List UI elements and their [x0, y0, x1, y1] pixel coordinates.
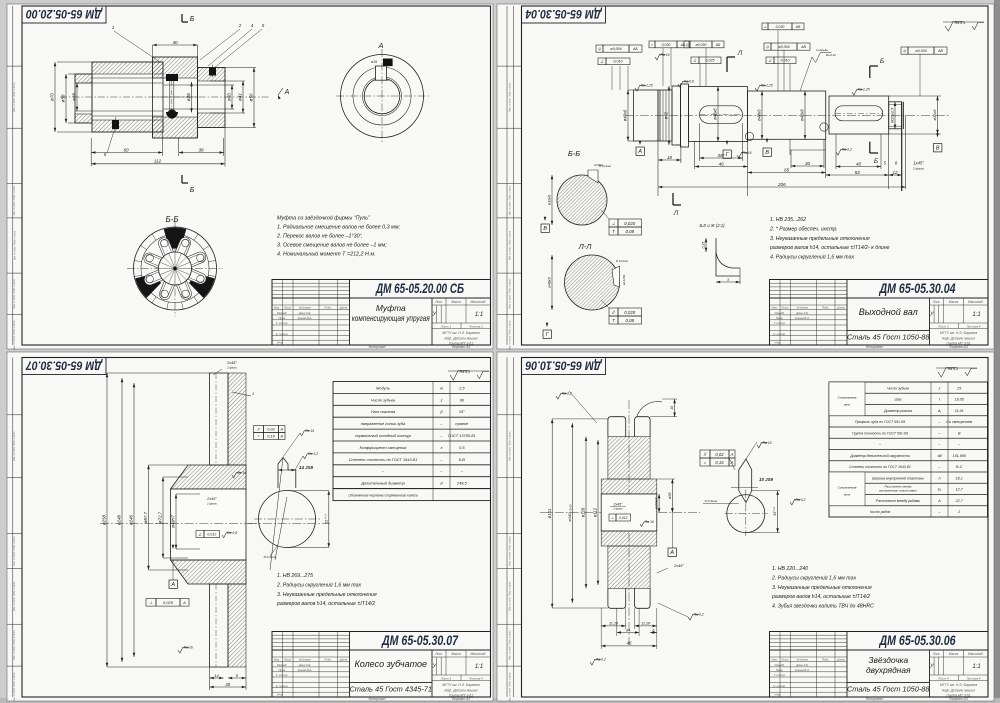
- svg-text:ø248: ø248: [117, 514, 122, 525]
- svg-text:40: 40: [172, 40, 178, 45]
- svg-text:3: 3: [727, 278, 729, 282]
- svg-text:Ra 1,25: Ra 1,25: [761, 84, 773, 88]
- svg-text:Утв.: Утв.: [774, 693, 781, 697]
- svg-text:Масштаб: Масштаб: [968, 652, 983, 656]
- svg-text:Ra 16: Ra 16: [660, 53, 669, 57]
- svg-text:Утв.: Утв.: [277, 341, 284, 345]
- svg-text:0,025: 0,025: [163, 600, 174, 605]
- svg-text:18: 18: [667, 155, 673, 160]
- svg-text:d∂: d∂: [938, 454, 942, 458]
- svg-text:10ЈS9: 10ЈS9: [594, 163, 603, 167]
- svg-text:2,5: 2,5: [458, 385, 465, 390]
- svg-text:Ra 3,2: Ra 3,2: [795, 498, 805, 502]
- svg-text:Лист 2: Лист 2: [937, 325, 949, 329]
- svg-text:Профиль зуба по ГОСТ 591-69: Профиль зуба по ГОСТ 591-69: [855, 420, 905, 424]
- svg-text:Инв. № подл. Подп. и дата: Инв. № подл. Подп. и дата: [508, 431, 511, 461]
- svg-text:Пров.: Пров.: [278, 668, 286, 672]
- svg-text:ø0,004: ø0,004: [610, 47, 621, 51]
- svg-text:Лист: Лист: [780, 658, 789, 662]
- svg-text:Формат А3: Формат А3: [452, 345, 471, 349]
- svg-text:Л: Л: [737, 50, 743, 57]
- svg-text:ø38: ø38: [72, 93, 77, 101]
- svg-text:ДМ 65-05.30.04: ДМ 65-05.30.04: [525, 7, 602, 21]
- svg-text:Инв. № подл. Подп. и дата: Инв. № подл. Подп. и дата: [13, 630, 16, 660]
- svg-text:0,02: 0,02: [715, 452, 724, 457]
- svg-text:Л-Л: Л-Л: [578, 242, 593, 251]
- svg-text:ø0,004: ø0,004: [915, 49, 926, 53]
- svg-text:МГТУ им. Н.Э. Баумана: МГТУ им. Н.Э. Баумана: [442, 331, 479, 335]
- svg-text:ø128: ø128: [581, 507, 586, 517]
- svg-text:ø32Н7: ø32Н7: [655, 497, 659, 509]
- svg-text:Дата: Дата: [339, 658, 348, 662]
- svg-text:ø246: ø246: [129, 514, 134, 525]
- svg-text:А: А: [170, 582, 175, 588]
- svg-text:Число зубьев: Число зубьев: [371, 397, 395, 402]
- svg-text:Каф. Детали машин: Каф. Детали машин: [445, 689, 478, 693]
- svg-text:38: 38: [198, 147, 204, 152]
- svg-text:4. Зубья звездочки калить ТВЧ: 4. Зубья звездочки калить ТВЧ до 48HRC: [772, 604, 874, 610]
- svg-text:ДМ 65-05.30.04: ДМ 65-05.30.04: [879, 281, 956, 296]
- svg-text:40: 40: [856, 161, 862, 166]
- svg-text:Ra 3,2: Ra 3,2: [308, 452, 318, 456]
- svg-text:1:1: 1:1: [475, 312, 483, 318]
- svg-text:Степень точности по ГОСТ 1643-: Степень точности по ГОСТ 1643-81: [349, 457, 418, 462]
- svg-text:0,02: 0,02: [267, 428, 275, 432]
- svg-text:Ширина внутренней пластины: Ширина внутренней пластины: [872, 476, 924, 480]
- svg-text:У: У: [929, 312, 934, 318]
- svg-text:0,08: 0,08: [625, 229, 634, 234]
- svg-text:В: В: [543, 226, 547, 232]
- svg-text:Изм.: Изм.: [274, 306, 280, 310]
- svg-text:ДМ 65-05.30.07: ДМ 65-05.30.07: [381, 633, 459, 648]
- svg-text:0,010: 0,010: [781, 59, 790, 63]
- svg-text:Изм.: Изм.: [274, 658, 280, 662]
- svg-text:Сталь 45 Гост 1050-88: Сталь 45 Гост 1050-88: [847, 685, 930, 694]
- svg-text:Б: Б: [874, 158, 878, 165]
- svg-text:30: 30: [225, 682, 230, 687]
- svg-text:0,012: 0,012: [619, 516, 628, 520]
- svg-text:1. НВ 269...275: 1. НВ 269...275: [277, 573, 313, 579]
- svg-text:ø48Н7: ø48Н7: [171, 515, 176, 528]
- svg-text:Листов 1: Листов 1: [468, 325, 483, 329]
- svg-text:Инв. № подл. Подп. и дата: Инв. № подл. Подп. и дата: [508, 230, 511, 260]
- svg-text:z: z: [440, 397, 443, 402]
- svg-text:18,1: 18,1: [956, 476, 963, 480]
- svg-text:В-С: В-С: [956, 465, 963, 469]
- svg-text:Пров.: Пров.: [278, 316, 286, 320]
- svg-text:Ra 16: Ra 16: [237, 471, 246, 475]
- svg-text:53: 53: [855, 170, 861, 175]
- svg-text:Муфта: Муфта: [376, 303, 406, 313]
- svg-text:Ra 6,3: Ra 6,3: [460, 370, 471, 374]
- svg-text:Масса: Масса: [451, 652, 461, 656]
- svg-text:z: z: [938, 386, 941, 390]
- svg-text:Данс К.Е.: Данс К.Е.: [795, 311, 809, 315]
- svg-text:Подп.: Подп.: [822, 658, 830, 662]
- svg-text:Б: Б: [880, 58, 884, 65]
- svg-text:ø50: ø50: [249, 93, 254, 101]
- svg-text:Число рядов: Число рядов: [870, 510, 891, 514]
- svg-text:Лит.: Лит.: [434, 300, 443, 304]
- svg-text:Т. контр.: Т. контр.: [773, 673, 785, 677]
- svg-text:1:1: 1:1: [972, 664, 980, 670]
- svg-text:А: А: [637, 149, 642, 155]
- svg-text:Инв. № подл. Подп. и дата: Инв. № подл. Подп. и дата: [508, 672, 511, 702]
- svg-text:0,5: 0,5: [459, 445, 465, 450]
- svg-text:Ra 3,2: Ra 3,2: [596, 658, 606, 662]
- svg-text:Инв. № подл. Подп. и дата: Инв. № подл. Подп. и дата: [13, 82, 16, 112]
- svg-text:ø112: ø112: [593, 507, 598, 517]
- svg-text:Копировал: Копировал: [866, 697, 883, 701]
- svg-text:Обозначение чертежа сопряженно: Обозначение чертежа сопряженного колеса: [348, 494, 417, 498]
- svg-text:Ra 6,3: Ra 6,3: [955, 21, 966, 25]
- svg-text:№ докум.: № докум.: [796, 658, 809, 662]
- svg-text:нормальный исходный контур: нормальный исходный контур: [355, 433, 411, 438]
- svg-text:0,030: 0,030: [662, 43, 671, 47]
- svg-text:52⁺°·²: 52⁺°·²: [324, 513, 328, 524]
- svg-text:Муфта со звёздочкой фирмы “Пу: Муфта со звёздочкой фирмы “Пуль”: [277, 215, 370, 222]
- svg-text:правое: правое: [455, 421, 469, 426]
- svg-text:Модуль: Модуль: [376, 385, 390, 390]
- svg-text:Листов 4: Листов 4: [966, 677, 981, 681]
- svg-text:Лист: Лист: [780, 306, 789, 310]
- svg-text:А: А: [279, 428, 283, 432]
- svg-text:1:1: 1:1: [475, 664, 483, 670]
- svg-text:ГОСТ 13755-81: ГОСТ 13755-81: [448, 433, 476, 438]
- svg-text:двухрядная: двухрядная: [866, 665, 911, 675]
- svg-text:Н. контр.: Н. контр.: [276, 684, 289, 688]
- svg-text:Инв. № подл. Подп. и дата: Инв. № подл. Подп. и дата: [13, 536, 16, 566]
- svg-text:Масштаб: Масштаб: [968, 300, 983, 304]
- svg-text:206: 206: [777, 182, 786, 187]
- svg-text:0,020: 0,020: [624, 310, 636, 315]
- svg-text:Инв. № подл. Подп. и дата: Инв. № подл. Подп. и дата: [13, 672, 16, 702]
- svg-text:Клюев В.А.: Клюев В.А.: [795, 668, 810, 672]
- svg-text:А: А: [284, 89, 290, 96]
- svg-text:№ докум.: № докум.: [796, 306, 809, 310]
- svg-text:Масса: Масса: [451, 300, 461, 304]
- svg-text:ø0,004: ø0,004: [778, 45, 789, 49]
- svg-text:компенсирующая упругая: компенсирующая упругая: [352, 313, 430, 323]
- svg-text:1:1: 1:1: [972, 312, 980, 318]
- svg-text:46: 46: [627, 641, 632, 646]
- svg-text:Инв. № подл. Подп. и дата: Инв. № подл. Подп. и дата: [508, 630, 511, 660]
- svg-text:АВ: АВ: [937, 49, 943, 53]
- svg-text:Коэффициент смещения: Коэффициент смещения: [360, 445, 407, 450]
- svg-text:Лист: Лист: [283, 306, 292, 310]
- svg-text:Н. контр.: Н. контр.: [773, 684, 786, 688]
- svg-text:46: 46: [719, 161, 725, 166]
- svg-text:В: В: [765, 150, 769, 156]
- svg-text:Б: Б: [190, 16, 195, 23]
- svg-text:А: А: [730, 452, 734, 457]
- svg-text:Инв. № подл. Подп. и дата: Инв. № подл. Подп. и дата: [13, 320, 16, 350]
- svg-text:4. Радиусы скруглений 1,6 мм: 4. Радиусы скруглений 1,6 мм max: [770, 254, 854, 261]
- svg-text:ДМ 65-05.20.00: ДМ 65-05.20.00: [26, 7, 103, 21]
- svg-text:2 фаски: 2 фаски: [612, 508, 623, 511]
- svg-text:Изм.: Изм.: [772, 306, 778, 310]
- svg-text:11,91: 11,91: [955, 409, 964, 413]
- svg-text:Клюев В.А.: Клюев В.А.: [795, 316, 810, 320]
- svg-text:А: А: [669, 550, 674, 556]
- svg-text:Степень точности по ГОСТ 1643-: Степень точности по ГОСТ 1643-81: [849, 465, 911, 469]
- svg-text:У: У: [929, 664, 934, 670]
- svg-text:ø48к6: ø48к6: [548, 276, 552, 287]
- svg-text:Ra 0,8: Ra 0,8: [684, 80, 694, 84]
- svg-text:19,05: 19,05: [955, 398, 965, 402]
- svg-text:Инв. № подл. Подп. и дата: Инв. № подл. Подп. и дата: [508, 278, 511, 308]
- svg-text:Формат А3: Формат А3: [452, 697, 471, 701]
- svg-text:Л: Л: [673, 210, 679, 217]
- svg-text:3. Осевое смещение валов не б: 3. Осевое смещение валов не более –1 мм;: [277, 243, 387, 249]
- svg-text:22,7: 22,7: [955, 499, 964, 503]
- svg-text:У: У: [432, 312, 437, 318]
- svg-text:0,025: 0,025: [706, 59, 715, 63]
- svg-text:Группа точности по ГОСТ 591-69: Группа точности по ГОСТ 591-69: [852, 431, 908, 435]
- svg-text:2: 2: [238, 23, 242, 28]
- svg-text:ДМ 65-05.30.07: ДМ 65-05.30.07: [25, 359, 103, 373]
- svg-text:ø87,7: ø87,7: [143, 511, 148, 523]
- svg-text:Листов 4: Листов 4: [468, 677, 483, 681]
- svg-text:0,16: 0,16: [715, 460, 724, 465]
- svg-text:Инв. № подл. Подп. и дата: Инв. № подл. Подп. и дата: [508, 82, 511, 112]
- svg-text:Сталь 45 Гост 4345-71: Сталь 45 Гост 4345-71: [349, 685, 432, 694]
- svg-text:ø52: ø52: [664, 111, 669, 119]
- svg-text:внутренними пластинами: внутренними пластинами: [879, 489, 917, 493]
- svg-text:Шаг: Шаг: [895, 398, 902, 402]
- svg-text:Б-Б: Б-Б: [568, 149, 580, 158]
- svg-text:h: h: [938, 476, 940, 480]
- svg-text:=: =: [651, 43, 653, 47]
- svg-text:Диаметр делительной окружности: Диаметр делительной окружности: [849, 454, 910, 458]
- svg-text:14 ЈS9: 14 ЈS9: [299, 465, 313, 470]
- svg-text:1: 1: [252, 391, 254, 396]
- svg-text:Клюев В.А.: Клюев В.А.: [298, 668, 313, 672]
- svg-text:Т. контр.: Т. контр.: [276, 321, 288, 325]
- svg-text:№ докум.: № докум.: [299, 658, 312, 662]
- svg-text:Подп.: Подп.: [822, 306, 830, 310]
- svg-text:12: 12: [892, 170, 898, 175]
- svg-text:0,010: 0,010: [614, 60, 623, 64]
- svg-text:Со смещением: Со смещением: [946, 420, 972, 424]
- svg-text:ø28: ø28: [186, 93, 191, 101]
- svg-text:ø140₋₀,₄₃: ø140₋₀,₄₃: [567, 504, 572, 522]
- svg-text:2х45°: 2х45°: [612, 503, 623, 507]
- svg-text:6: 6: [652, 628, 654, 632]
- svg-text:Ra 3,2: Ra 3,2: [842, 148, 852, 152]
- svg-text:⊥: ⊥: [149, 600, 153, 605]
- svg-text:11,28: 11,28: [641, 622, 651, 626]
- svg-text:Лист 4: Лист 4: [937, 677, 949, 681]
- svg-text:ø48к6: ø48к6: [757, 109, 762, 121]
- svg-text:3. Неуказанные предельные отк: 3. Неуказанные предельные отклонения: [772, 585, 872, 591]
- svg-text:2. Радиусы скруглений 1,6 мм: 2. Радиусы скруглений 1,6 мм max: [771, 574, 856, 581]
- svg-text:Подп.: Подп.: [324, 658, 332, 662]
- svg-text:2 фаски: 2 фаски: [206, 502, 217, 506]
- svg-text:АВ: АВ: [800, 45, 806, 49]
- svg-text:АБ: АБ: [715, 43, 721, 47]
- svg-text:Лист 3: Лист 3: [440, 677, 452, 681]
- svg-text:Разраб.: Разраб.: [277, 663, 287, 667]
- svg-text:ø161: ø161: [547, 509, 552, 519]
- svg-text:2. * Размер обеспеч. инстр.: 2. * Размер обеспеч. инстр.: [769, 226, 838, 232]
- svg-text:Утв.: Утв.: [277, 693, 284, 697]
- svg-text:⊥: ⊥: [763, 25, 766, 29]
- svg-text:10: 10: [670, 406, 674, 410]
- svg-text:Ra 16: Ra 16: [645, 520, 654, 524]
- svg-text:2. Перекос валов не более –1°: 2. Перекос валов не более –1°30';: [276, 234, 363, 240]
- svg-text:Б-Б: Б-Б: [165, 215, 178, 224]
- svg-text:А: А: [182, 600, 186, 605]
- svg-text:гл.резьбы: гл.резьбы: [816, 48, 828, 52]
- svg-text:МГТУ им. Н.Э. Баумана: МГТУ им. Н.Э. Баумана: [442, 683, 479, 687]
- svg-text:ø32к6: ø32к6: [548, 194, 552, 205]
- svg-text:Данс К.Е.: Данс К.Е.: [795, 663, 809, 667]
- svg-text:Утв.: Утв.: [774, 341, 781, 345]
- svg-text:Инв. № подл. Подп. и дата: Инв. № подл. Подп. и дата: [13, 230, 16, 260]
- svg-text:ø30: ø30: [227, 93, 232, 101]
- svg-text:151,995: 151,995: [953, 454, 967, 458]
- svg-text:ø258: ø258: [102, 514, 107, 525]
- svg-text:А: А: [279, 435, 283, 439]
- svg-text:Разраб.: Разраб.: [277, 311, 287, 315]
- svg-text:Инв. № подл. Подп. и дата: Инв. № подл. Подп. и дата: [508, 536, 511, 566]
- svg-text:–: –: [878, 443, 881, 447]
- svg-text:3. Неуказанные предельные отк: 3. Неуказанные предельные отклонения: [277, 592, 377, 598]
- svg-text:15°: 15°: [459, 409, 465, 414]
- svg-text:2х45°: 2х45°: [673, 564, 684, 568]
- svg-text:R 0,1max: R 0,1max: [616, 259, 629, 263]
- svg-text:Масштаб: Масштаб: [471, 652, 486, 656]
- svg-text:Лит.: Лит.: [932, 652, 941, 656]
- svg-text:Данс К.Е.: Данс К.Е.: [298, 311, 312, 315]
- svg-text:35°⁺²: 35°⁺²: [773, 507, 777, 516]
- svg-text:Ra 3,2: Ra 3,2: [694, 613, 704, 617]
- svg-text:Масса: Масса: [949, 652, 959, 656]
- svg-text:ø19: ø19: [371, 60, 377, 64]
- svg-text:⊥: ⊥: [612, 221, 616, 226]
- svg-text:№ докум.: № докум.: [299, 306, 312, 310]
- svg-text:Дата: Дата: [836, 306, 845, 310]
- svg-text:Инв. № подл. Подп. и дата: Инв. № подл. Подп. и дата: [508, 320, 511, 350]
- svg-text:А: А: [937, 499, 941, 503]
- svg-text:2 фаски: 2 фаски: [226, 366, 237, 370]
- svg-text:М20х1,5: М20х1,5: [890, 107, 895, 123]
- svg-text:1. НВ 235...262: 1. НВ 235...262: [770, 217, 806, 223]
- svg-text:34: 34: [626, 627, 631, 632]
- svg-text:Лист: Лист: [283, 658, 292, 662]
- svg-text:Сопрягаемая: Сопрягаемая: [838, 396, 857, 400]
- svg-text:Б: Б: [190, 187, 195, 194]
- svg-text:0,020: 0,020: [624, 221, 636, 226]
- svg-text:3. Неуказанные предельные отк: 3. Неуказанные предельные отклонения: [770, 236, 870, 242]
- svg-text:ø40к6: ø40к6: [623, 109, 628, 121]
- svg-text:Делительный диаметр: Делительный диаметр: [360, 481, 405, 486]
- svg-text:ДМ 65-05.10.06: ДМ 65-05.10.06: [525, 359, 602, 373]
- svg-text:Число зубьев: Число зубьев: [887, 386, 909, 390]
- svg-text:ø0,030: ø0,030: [696, 43, 707, 47]
- svg-text:Клюев В.А.: Клюев В.А.: [298, 316, 313, 320]
- svg-text:ø40к8: ø40к8: [800, 109, 805, 121]
- svg-text:Инв. № подл. Подп. и дата: Инв. № подл. Подп. и дата: [13, 185, 16, 215]
- svg-text:Угол наклона: Угол наклона: [371, 409, 396, 414]
- svg-text:Ra 1,25: Ra 1,25: [641, 84, 653, 88]
- svg-text:Звёздочка: Звёздочка: [868, 655, 908, 665]
- svg-text:Ra 16: Ra 16: [305, 429, 314, 433]
- svg-text:Каф. Детали машин: Каф. Детали машин: [942, 689, 975, 693]
- svg-text:0,16: 0,16: [267, 435, 275, 439]
- svg-text:2 фаски: 2 фаски: [912, 167, 925, 171]
- svg-text:ДМ 65-05.20.00 СБ: ДМ 65-05.20.00 СБ: [375, 281, 464, 296]
- svg-text:Копировал: Копировал: [369, 697, 386, 701]
- svg-text:ø58: ø58: [61, 94, 66, 102]
- svg-text:Инв. № подл. Подп. и дата: Инв. № подл. Подп. и дата: [13, 431, 16, 461]
- svg-text:Инв. № подл. Подп. и дата: Инв. № подл. Подп. и дата: [508, 185, 511, 215]
- svg-text:Формат А3: Формат А3: [949, 697, 968, 701]
- svg-text:Ra 16: Ra 16: [742, 151, 751, 155]
- svg-text:направление линии зуба: направление линии зуба: [361, 421, 406, 426]
- svg-text:В: В: [936, 146, 940, 152]
- svg-text:8-В: 8-В: [459, 457, 465, 462]
- svg-text:b₃: b₃: [938, 488, 942, 492]
- svg-text:Пров.: Пров.: [776, 316, 784, 320]
- svg-text:Ra 16: Ra 16: [762, 441, 771, 445]
- svg-text:⊥: ⊥: [611, 516, 614, 520]
- svg-text:12,7: 12,7: [956, 488, 964, 492]
- svg-text:цепь: цепь: [844, 402, 851, 406]
- svg-text:11,28: 11,28: [609, 622, 619, 626]
- svg-text:ø48к6: ø48к6: [713, 108, 718, 120]
- svg-text:Сопрягаемая: Сопрягаемая: [838, 486, 857, 490]
- svg-text:Копировал: Копировал: [866, 345, 883, 349]
- svg-text:Ra 1,25: Ra 1,25: [858, 88, 870, 92]
- svg-text:30: 30: [805, 161, 811, 166]
- svg-text:2х45°: 2х45°: [206, 497, 217, 501]
- svg-text:2. Радиусы скруглений 1,6 мм: 2. Радиусы скруглений 1,6 мм max: [276, 581, 361, 588]
- svg-text:Масштаб: Масштаб: [471, 300, 486, 304]
- svg-text:Дата: Дата: [339, 306, 348, 310]
- svg-text:0,25: 0,25: [702, 242, 706, 249]
- svg-text:Лит.: Лит.: [434, 652, 443, 656]
- svg-text:Н. контр.: Н. контр.: [276, 332, 289, 336]
- svg-text:размеров валов h14, остальные: размеров валов h14, остальные ±IT14/2: [771, 594, 870, 600]
- svg-text:Н. контр.: Н. контр.: [773, 332, 786, 336]
- svg-text:Пров.: Пров.: [776, 668, 784, 672]
- svg-text:ДМ 65-05.30.06: ДМ 65-05.30.06: [879, 633, 956, 648]
- svg-text:Т. контр.: Т. контр.: [773, 321, 785, 325]
- svg-text:Разраб.: Разраб.: [774, 311, 784, 315]
- svg-text:размеров валов h14, остальные: размеров валов h14, остальные ±IT14/2: [276, 601, 375, 607]
- svg-text:36*: 36*: [718, 153, 725, 158]
- svg-text:Т: Т: [612, 318, 615, 323]
- svg-text:248,5: 248,5: [456, 481, 468, 486]
- svg-text:Диаметр ролика: Диаметр ролика: [883, 409, 912, 413]
- svg-text:Ra 0,8: Ra 0,8: [227, 531, 237, 535]
- svg-text:65: 65: [784, 167, 790, 172]
- svg-text:ø58: ø58: [668, 492, 672, 499]
- svg-text:Формат А3: Формат А3: [949, 345, 968, 349]
- svg-text:0,030: 0,030: [776, 25, 785, 29]
- svg-text:Каф. Детали машин: Каф. Детали машин: [942, 337, 975, 341]
- svg-text:ø41: ø41: [238, 93, 243, 101]
- svg-text:ø70: ø70: [50, 93, 55, 101]
- svg-text:Расстояние между рядами: Расстояние между рядами: [876, 499, 921, 503]
- svg-text:МГТУ им. Н.Э. Баумана: МГТУ им. Н.Э. Баумана: [940, 683, 977, 687]
- svg-text:Инв. № подл. Подп. и дата: Инв. № подл. Подп. и дата: [13, 581, 16, 611]
- svg-text:АБ: АБ: [632, 47, 638, 51]
- svg-text:Сталь 45 Гост 1050-88: Сталь 45 Гост 1050-88: [847, 333, 930, 342]
- svg-text:112: 112: [154, 159, 162, 164]
